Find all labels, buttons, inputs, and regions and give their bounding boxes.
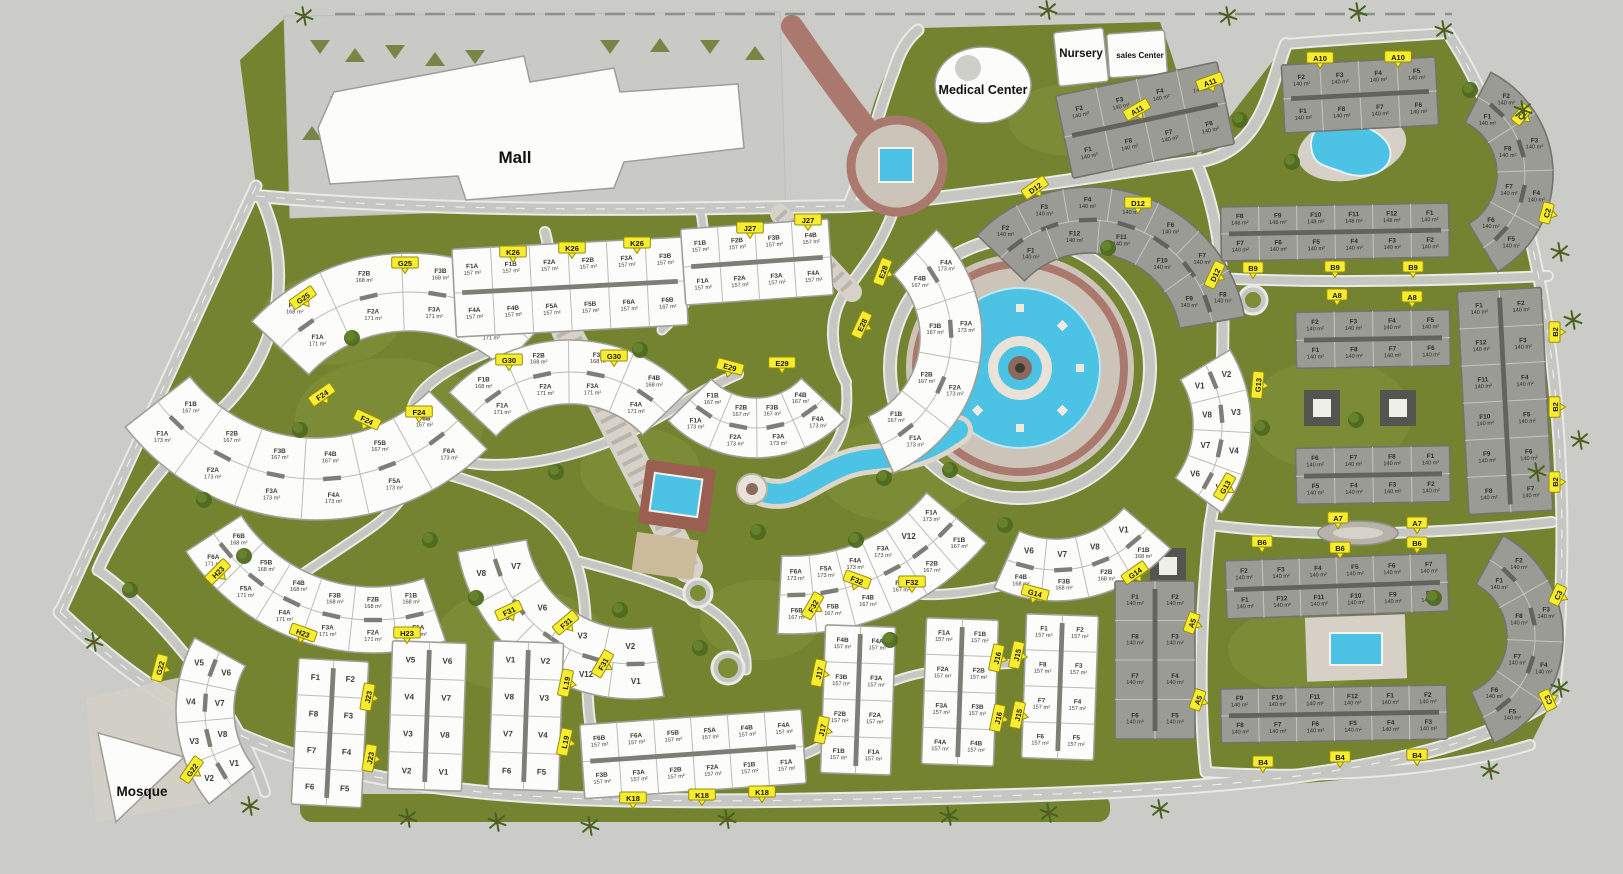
tree-icon — [750, 524, 766, 540]
unit-label: V8 — [1202, 411, 1212, 420]
cluster-L19[interactable]: V1V2V8V3V7V4F6F5 — [488, 641, 563, 791]
west-pool — [650, 473, 703, 517]
tree-icon — [1100, 240, 1116, 256]
unit-label: V2 — [402, 766, 413, 775]
unit-label: V6 — [537, 603, 547, 612]
unit-label: F5 — [340, 784, 350, 794]
cluster-A10[interactable]: F2140 m²F3140 m²F4140 m²F5140 m²F1140 m²… — [1281, 57, 1438, 133]
unit-label: V7 — [1057, 550, 1067, 559]
unit-label: V1 — [1119, 525, 1129, 534]
tree-icon — [997, 517, 1013, 533]
unit-label: V8 — [440, 730, 451, 739]
marker-label: G25 — [398, 259, 412, 268]
marker-label: A10 — [1391, 53, 1405, 62]
unit-label: F3 — [344, 711, 354, 721]
unit-label: V8 — [504, 692, 515, 701]
tree-icon — [612, 602, 628, 618]
cluster-B9[interactable]: F8148 m²F9148 m²F10148 m²F11148 m²F12148… — [1221, 203, 1450, 261]
tree-icon — [1348, 412, 1364, 428]
tree-icon — [236, 548, 252, 564]
marker-label: B4 — [1258, 758, 1268, 767]
tree-icon — [1232, 112, 1248, 128]
tree-icon — [632, 342, 648, 358]
tree-icon — [548, 464, 564, 480]
cluster-B6[interactable]: F2140 m²F3140 m²F4140 m²F5140 m²F6140 m²… — [1225, 553, 1449, 619]
marker-label: B6 — [1412, 539, 1422, 548]
unit-label: F1 — [310, 673, 320, 683]
unit-label: V1 — [229, 759, 239, 768]
marker-label: B2 — [1551, 327, 1560, 337]
unit-label: V7 — [1201, 441, 1211, 450]
tree-icon — [292, 422, 308, 438]
tree-icon — [468, 590, 484, 606]
marker-label: K18 — [626, 794, 640, 803]
unit-label: V8 — [1090, 543, 1100, 552]
unit-label: V5 — [194, 658, 204, 667]
unit-label: V3 — [1231, 408, 1241, 417]
marker-label: H23 — [400, 629, 414, 638]
marker-label: K26 — [565, 244, 579, 253]
marker-label: B6 — [1335, 544, 1345, 553]
cluster-A8[interactable]: F2140 m²F3140 m²F4140 m²F5140 m²F1140 m²… — [1296, 310, 1451, 369]
unit-label: V7 — [503, 729, 514, 738]
marker-label: B6 — [1257, 538, 1267, 547]
cluster-J15[interactable]: F1157 m²F2157 m²F8157 m²F3157 m²F7157 m²… — [1022, 614, 1099, 760]
medical-courtyard — [955, 55, 981, 81]
sales-center-label: sales Center — [1116, 51, 1164, 60]
cluster-K18[interactable]: F6B157 m²F6A157 m²F5B157 m²F5A157 m²F4B1… — [580, 709, 807, 798]
unit-label: V6 — [221, 669, 231, 678]
unit-label: F2 — [345, 675, 355, 685]
marker-label: F32 — [906, 578, 919, 587]
unit-label: V4 — [538, 730, 549, 739]
marker-label: A10 — [1313, 54, 1327, 63]
marker-label: G30 — [607, 352, 621, 361]
tree-icon — [1426, 590, 1442, 606]
marker-label: B4 — [1335, 753, 1345, 762]
tree-icon — [422, 532, 438, 548]
marker-label: A7 — [1333, 514, 1343, 523]
unit-label: V12 — [901, 532, 916, 541]
tree-icon — [1254, 420, 1270, 436]
cluster-v-block[interactable]: V5V6V4V7V3V8V2V1 — [387, 641, 466, 791]
unit-label: V8 — [218, 730, 228, 739]
unit-label: V1 — [631, 677, 641, 686]
mall-label: Mall — [498, 148, 531, 167]
unit-label: V1 — [1195, 381, 1205, 390]
tree-icon — [882, 632, 898, 648]
unit-label: V7 — [511, 562, 521, 571]
tree-icon — [942, 462, 958, 478]
unit-label: V1 — [438, 767, 449, 776]
unit-label: V2 — [204, 774, 214, 783]
unit-label: V8 — [476, 569, 486, 578]
marker-label: G30 — [502, 356, 516, 365]
tree-icon — [1284, 154, 1300, 170]
unit-label: V3 — [578, 631, 588, 640]
unit-label: V4 — [1229, 447, 1239, 456]
marker-label: B9 — [1248, 264, 1258, 273]
marker-label: K26 — [630, 239, 644, 248]
marker-label: B4 — [1412, 751, 1422, 760]
marker-label: D12 — [1131, 199, 1145, 208]
tree-icon — [1462, 82, 1478, 98]
unit-label: V6 — [1024, 546, 1034, 555]
unit-label: F7 — [307, 746, 317, 756]
tree-icon — [692, 640, 708, 656]
nursery-label: Nursery — [1059, 48, 1103, 60]
tree-icon — [848, 532, 864, 548]
unit-label: F8 — [309, 709, 319, 719]
tree-icon — [344, 330, 360, 346]
unit-label: V7 — [441, 693, 452, 702]
master-plan-map: F1B168 m²F2B168 m²F3B168 m²F4B168 m²F1A1… — [0, 0, 1623, 874]
medical-center-label: Medical Center — [939, 83, 1028, 97]
marker-label: F24 — [413, 408, 427, 417]
marker-label: A7 — [1412, 519, 1422, 528]
unit-label: V6 — [1190, 469, 1200, 478]
unit-label: V7 — [215, 699, 225, 708]
cluster-A5[interactable]: F1140 m²F2140 m²F8140 m²F3140 m²F7140 m²… — [1115, 581, 1195, 739]
tree-icon — [122, 582, 138, 598]
marker-label: A8 — [1407, 293, 1417, 302]
unit-label: F6 — [502, 766, 512, 775]
unit-label: V5 — [405, 655, 416, 664]
unit-label: V2 — [625, 642, 635, 651]
cluster-A8b[interactable]: F6140 m²F7140 m²F8140 m²F1140 m²F5140 m²… — [1296, 446, 1451, 505]
marker-label: G13 — [1253, 378, 1263, 393]
marker-label: K18 — [695, 791, 709, 800]
unit-label: V6 — [442, 657, 453, 666]
cluster-J16[interactable]: F1A157 m²F1B157 m²F2A157 m²F2B157 m²F3A1… — [921, 618, 998, 766]
marker-label: J27 — [744, 224, 757, 233]
unit-label: V1 — [505, 655, 516, 664]
entry-fountain-pool — [879, 148, 913, 182]
unit-label: V3 — [403, 729, 414, 738]
master-plan-svg: F1B168 m²F2B168 m²F3B168 m²F4B168 m²F1A1… — [0, 0, 1623, 874]
unit-label: V3 — [189, 737, 199, 746]
marker-label: K18 — [755, 788, 769, 797]
unit-label: V2 — [540, 656, 551, 665]
marker-label: B9 — [1330, 263, 1340, 272]
unit-label: F5 — [537, 767, 547, 776]
unit-label: V2 — [1222, 370, 1232, 379]
marker-label: A8 — [1332, 291, 1342, 300]
marker-label: B9 — [1408, 263, 1418, 272]
tree-icon — [196, 492, 212, 508]
unit-label: V4 — [404, 692, 415, 701]
marker-label: J27 — [802, 216, 815, 225]
tree-icon — [876, 470, 892, 486]
cluster-J17[interactable]: F4B157 m²F4A157 m²F3B157 m²F3A157 m²F2B1… — [820, 625, 895, 775]
unit-label: F4 — [342, 747, 352, 757]
unit-label: V4 — [186, 697, 196, 706]
unit-label: V3 — [539, 693, 550, 702]
marker-label: K26 — [506, 248, 520, 257]
southeast-pool — [1330, 633, 1382, 665]
marker-label: B2 — [1551, 477, 1560, 487]
cluster-J23[interactable]: F1F2F8F3F7F4F6F5 — [291, 658, 369, 807]
cluster-B4[interactable]: F9140 m²F10140 m²F11140 m²F12140 m²F1140… — [1221, 685, 1448, 743]
marker-label: B2 — [1551, 402, 1560, 412]
mosque-label: Mosque — [116, 784, 167, 799]
unit-label: F6 — [305, 782, 315, 792]
marker-label: E29 — [775, 359, 788, 368]
